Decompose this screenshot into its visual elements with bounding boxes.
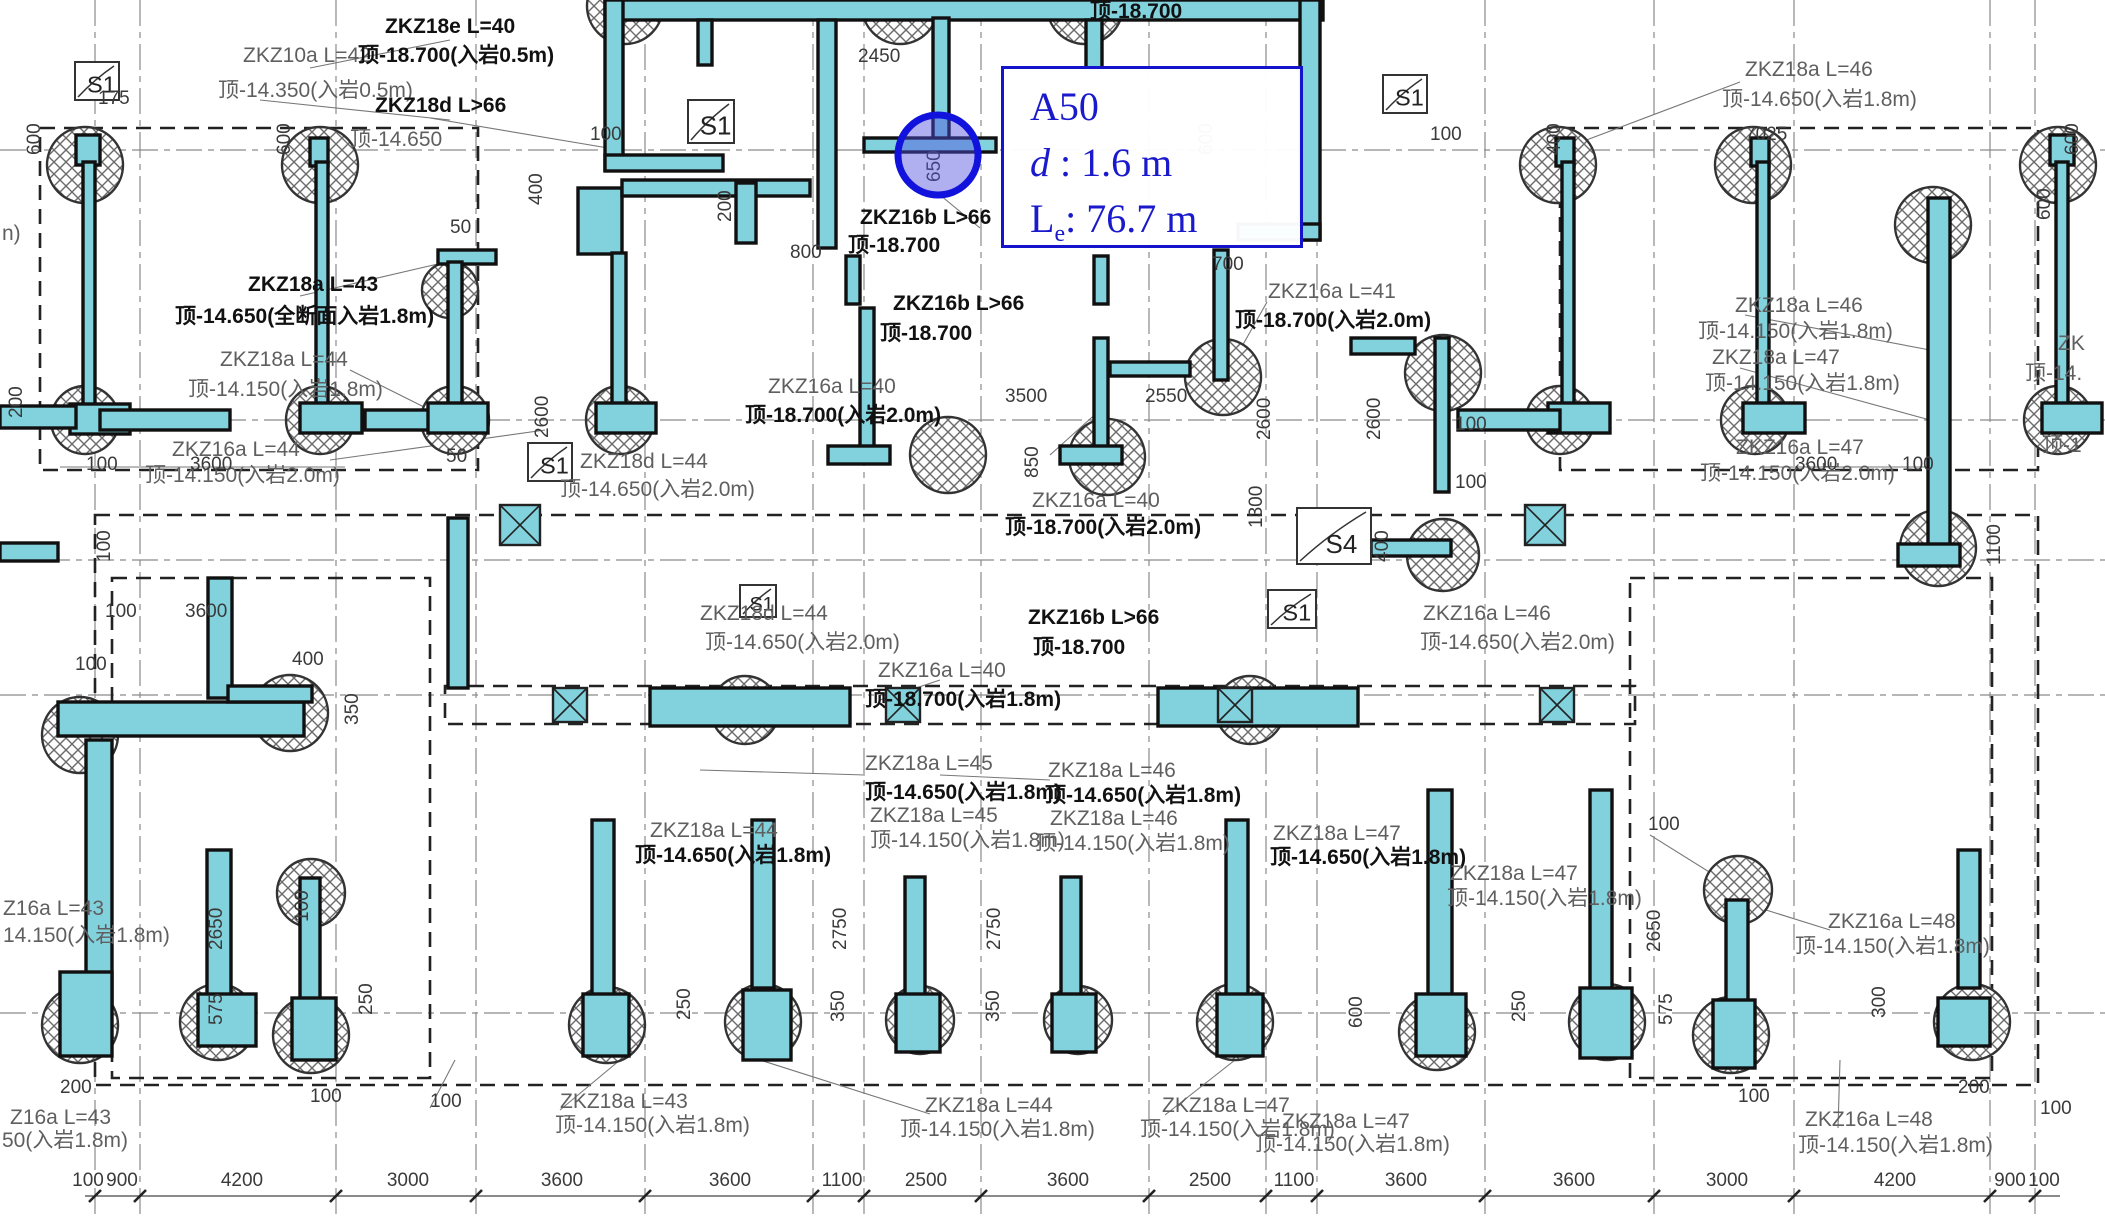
dimension-label: 3600	[185, 601, 227, 622]
wall-segment	[612, 253, 626, 409]
wall-segment	[0, 543, 58, 561]
pile-label: ZKZ16b L>66	[893, 292, 1024, 315]
pile-info-callout: A50 d : 1.6 m Le: 76.7 m	[1001, 66, 1303, 248]
dimension-label: 600	[24, 123, 45, 155]
dimension-label: 575	[206, 993, 227, 1025]
pile-label: ZKZ18a L=46	[1050, 807, 1178, 830]
pile-label: 顶-14.150(入岩1.8m)	[555, 1114, 750, 1137]
pile-label: 顶-14.150(入岩1.8m)	[1798, 1134, 1993, 1157]
dimension-label: 100	[75, 654, 107, 675]
pile-label: 顶-18.700(入岩2.0m)	[1235, 308, 1431, 332]
dimension-label: 100	[94, 530, 115, 562]
section-symbol-label: S4	[1325, 529, 1357, 559]
dimension-label: 2650	[1644, 910, 1665, 952]
pile-label: 顶-14.150(入岩1.8m)	[900, 1118, 1095, 1141]
wall-segment	[1580, 988, 1632, 1058]
pile-label: ZKZ16a L=40	[768, 375, 896, 398]
pile-label: ZKZ18a L=47	[1273, 822, 1401, 845]
diameter-label: d	[1030, 140, 1050, 185]
dimension-label: 100	[1648, 814, 1680, 835]
dimension-label: 575	[1656, 993, 1677, 1025]
dimension-label: 350	[983, 990, 1004, 1022]
wall-segment	[736, 183, 756, 243]
pile-label: 顶-18.700	[848, 234, 940, 257]
pile-label: 顶-14.150(入岩2.0m)	[145, 464, 340, 487]
wall-segment	[1958, 850, 1980, 988]
wall-segment	[228, 686, 312, 702]
pile-label: ZKZ18a L=47	[1450, 862, 1578, 885]
wall-segment	[650, 688, 850, 726]
length-label-subscript: e	[1054, 221, 1065, 247]
dimension-label: 250	[674, 988, 695, 1020]
dimension-label: 7025	[1745, 124, 1787, 145]
pile-circle	[910, 417, 986, 493]
foundation-plan-screenshot: S1S1S1S1S1S1S4 ZKZ10a L=42顶-14.350(入岩0.5…	[0, 0, 2105, 1216]
wall-segment	[828, 446, 890, 464]
dimension-label: 250	[356, 983, 377, 1015]
pile-label: 顶-14.650	[350, 128, 442, 151]
wall-segment	[1300, 0, 1320, 240]
wall-segment	[1562, 162, 1574, 412]
pile-label: 顶-18.700	[880, 322, 972, 345]
wall-segment	[1110, 362, 1190, 376]
dimension-label: 2600	[1254, 398, 1275, 440]
pile-label: ZKZ18a L=45	[865, 752, 993, 775]
dimension-label: 100	[105, 601, 137, 622]
wall-segment	[1060, 446, 1122, 464]
dimension-label: 50	[446, 446, 467, 467]
dimension-label: 2550	[1145, 386, 1187, 407]
dimension-label: 2500	[1189, 1170, 1231, 1191]
dimension-label: 300	[1869, 986, 1890, 1018]
pile-label: ZKZ16b L>66	[1028, 606, 1159, 629]
dimension-label: 100	[590, 124, 622, 145]
dimension-label: 900	[106, 1170, 138, 1191]
pile-label: ZKZ16a L=48	[1828, 910, 1956, 933]
dimension-label: 200	[60, 1077, 92, 1098]
wall-segment	[605, 155, 723, 171]
dimension-label: 3000	[1706, 1170, 1748, 1191]
dimension-label: 350	[342, 693, 363, 725]
pile-label: Z16a L=43	[3, 897, 104, 920]
pile-label: ZKZ18a L=46	[1735, 294, 1863, 317]
dimension-label: 3500	[1005, 386, 1047, 407]
dimension-label: 350	[828, 990, 849, 1022]
wall-segment	[896, 994, 940, 1052]
pile-label: 顶-14.150(入岩1.8m)	[1035, 832, 1230, 855]
pile-label: ZKZ18a L=46	[1745, 58, 1873, 81]
dimension-label: 100	[292, 890, 313, 922]
dimension-label: 3600	[1047, 1170, 1089, 1191]
dimension-label: 100	[1455, 414, 1487, 435]
dimension-label: 200	[6, 386, 27, 418]
dimension-label: 2500	[905, 1170, 947, 1191]
wall-segment	[448, 518, 468, 688]
wall-segment	[905, 877, 925, 997]
wall-segment	[596, 403, 656, 433]
callout-pile-id: A50	[1030, 79, 1274, 135]
wall-segment	[58, 702, 304, 736]
section-symbol-label: S1	[1282, 599, 1311, 625]
pile-label: Z16a L=43	[10, 1106, 111, 1129]
wall-segment	[1416, 994, 1466, 1056]
dimension-label: 50	[450, 217, 471, 238]
pile-label: 顶-14.150(入岩1.8m)	[1447, 887, 1642, 910]
pile-label: 顶-14.650(入岩1.8m)	[1722, 88, 1917, 111]
wall-segment	[1435, 338, 1449, 492]
dimension-label: 600	[274, 123, 295, 155]
dimension-label: 3000	[387, 1170, 429, 1191]
pile-label: ZKZ18a L=44	[220, 348, 348, 371]
wall-segment	[1052, 994, 1096, 1052]
dimension-label: 3600	[709, 1170, 751, 1191]
wall-segment	[2042, 403, 2102, 433]
pile-label: ZKZ16a L=46	[1423, 602, 1551, 625]
dimension-label: 100	[1738, 1086, 1770, 1107]
dimension-label: 400	[526, 173, 547, 205]
wall-segment	[1726, 900, 1748, 1006]
callout-length-row: Le: 76.7 m	[1030, 191, 1274, 262]
pile-label: ZKZ18a L=45	[870, 804, 998, 827]
wall-segment	[1086, 20, 1102, 68]
dimension-label: 3600	[1385, 1170, 1427, 1191]
wall-segment	[698, 20, 712, 65]
pile-label: ZKZ18d L=44	[700, 602, 828, 625]
length-separator: :	[1065, 196, 1086, 241]
wall-segment	[1928, 198, 1950, 556]
dimension-label: 400	[1544, 123, 1565, 155]
callout-diameter-row: d : 1.6 m	[1030, 135, 1274, 191]
diameter-separator: :	[1050, 140, 1081, 185]
dimension-label: 850	[1022, 446, 1043, 478]
pile-label: 顶-14.	[2025, 362, 2082, 385]
dimension-label: 900	[1994, 1170, 2026, 1191]
pile-label: 顶-18.700(入岩1.8m)	[865, 687, 1061, 711]
pile-label: 顶-18.700	[1033, 636, 1125, 659]
wall-segment	[592, 820, 614, 998]
pile-label: ZKZ16a L=48	[1805, 1108, 1933, 1131]
pile-label: ZKZ18a L=44	[925, 1094, 1053, 1117]
dimension-label: 600	[2062, 123, 2083, 155]
dimension-label: 3600	[541, 1170, 583, 1191]
wall-segment	[1094, 338, 1108, 452]
wall-segment	[1898, 544, 1960, 566]
pile-label: 14.150(入岩1.8m)	[3, 924, 170, 947]
dimension-label: 600	[2034, 188, 2055, 220]
dimension-label: 4200	[221, 1170, 263, 1191]
pile-label: 顶-18.700	[1090, 0, 1182, 23]
pile-label: n)	[2, 222, 21, 245]
wall-segment	[83, 162, 95, 414]
wall-segment	[428, 403, 488, 433]
wall-segment	[1938, 998, 1990, 1046]
pile-label: ZKZ10a L=42	[243, 44, 371, 67]
dimension-label: 2600	[1364, 398, 1385, 440]
pile-label: 顶-14.150(入岩1.8m)	[1705, 372, 1900, 395]
wall-segment	[448, 262, 462, 410]
section-symbol-label: S1	[1395, 84, 1424, 110]
dimension-label: 400	[1372, 530, 1393, 562]
dimension-label: 100	[1430, 124, 1462, 145]
dimension-label: 175	[98, 88, 130, 109]
dimension-label: 1100	[1274, 1170, 1315, 1191]
dimension-label: 800	[790, 242, 822, 263]
pile-label: ZKZ18a L=47	[1712, 346, 1840, 369]
wall-segment	[583, 994, 629, 1056]
pile-label: 顶-14.150(入岩1.8m)	[1795, 935, 1990, 958]
pile-label: 顶-18.700(入岩0.5m)	[358, 43, 554, 67]
wall-segment	[208, 578, 232, 698]
wall-segment	[1713, 1000, 1755, 1068]
pile-label: ZKZ18a L=47	[1162, 1094, 1290, 1117]
dimension-label: 100	[2040, 1098, 2072, 1119]
wall-segment	[578, 188, 622, 254]
dimension-label: 1100	[822, 1170, 863, 1191]
dimension-label: 2750	[984, 908, 1005, 950]
leader-line	[940, 775, 1050, 780]
pile-label: ZKZ18d L>66	[375, 94, 506, 117]
section-symbol-label: S1	[700, 110, 732, 140]
dimension-label: 2750	[830, 908, 851, 950]
pile-label: ZK	[2058, 332, 2085, 355]
length-label: L	[1030, 196, 1054, 241]
pile-label: ZKZ18a L=44	[650, 819, 778, 842]
wall-segment	[818, 20, 836, 248]
pile-label: ZKZ18a L=46	[1048, 759, 1176, 782]
pile-label: 顶-18.700(入岩2.0m)	[745, 403, 941, 427]
pile-label: 顶-14.650(入岩1.8m)	[635, 843, 831, 867]
pile-label: 顶-14.150(入岩1.8m)	[188, 378, 383, 401]
pile-label: ZKZ16b L>66	[860, 206, 991, 229]
dimension-label: 100	[1902, 454, 1934, 475]
dimension-label: 250	[1509, 990, 1530, 1022]
leader-line	[700, 770, 865, 775]
dimension-label: 1100	[1984, 524, 2005, 565]
wall-segment	[846, 256, 860, 304]
highlighted-pile-marker[interactable]	[898, 115, 978, 195]
dimension-label: 200	[1958, 1077, 1990, 1098]
dimension-label: 2450	[858, 46, 900, 67]
dimension-label: 100	[1455, 472, 1487, 493]
wall-segment	[100, 410, 230, 430]
pile-label: ZKZ18d L=44	[580, 450, 708, 473]
dimension-label: 1300	[1246, 486, 1267, 528]
pile-label: ZKZ18a L=47	[1282, 1110, 1410, 1133]
pile-label: ZKZ16a L=40	[878, 659, 1006, 682]
leader-line	[760, 1060, 930, 1114]
wall-segment	[1217, 994, 1263, 1056]
dimension-label: 400	[292, 649, 324, 670]
wall-segment	[300, 403, 362, 433]
dimension-label: 2650	[206, 908, 227, 950]
dimension-label: 100	[2028, 1170, 2060, 1191]
dimension-label: 100	[86, 454, 118, 475]
building-outline	[112, 578, 430, 1078]
pile-label: ZKZ16a L=40	[1032, 489, 1160, 512]
dimension-label: 3600	[1553, 1170, 1595, 1191]
pile-label: 50(入岩1.8m)	[2, 1129, 128, 1152]
dimension-label: 600	[1346, 996, 1367, 1028]
wall-segment	[743, 990, 791, 1060]
dimension-label: 200	[715, 190, 736, 222]
section-symbol-label: S1	[540, 452, 569, 478]
pile-label: 顶-14.650(入岩2.0m)	[1420, 631, 1615, 654]
pile-label: 顶-14.150(入岩1.8m)	[1255, 1133, 1450, 1156]
dimension-label: 4200	[1874, 1170, 1916, 1191]
wall-segment	[605, 0, 1323, 20]
wall-segment	[1158, 688, 1358, 726]
pile-label: ZKZ16a L=41	[1268, 280, 1396, 303]
pile-label: 顶-14.650(入岩2.0m)	[560, 478, 755, 501]
pile-label: 顶-14.650(入岩1.8m)	[865, 780, 1061, 804]
wall-segment	[292, 998, 336, 1060]
wall-segment	[1743, 403, 1805, 433]
pile-label: 顶-1	[2042, 434, 2082, 457]
pile-label: 顶-18.700(入岩2.0m)	[1005, 515, 1201, 539]
pile-label: ZKZ18e L=40	[385, 15, 515, 38]
dimension-label: 3600	[190, 454, 232, 475]
dimension-label: 100	[430, 1091, 462, 1112]
pile-label: 顶-14.650(全断面入岩1.8m)	[175, 304, 434, 328]
dimension-label: 3600	[1795, 454, 1837, 475]
wall-segment	[1351, 338, 1415, 354]
pile-label: 顶-14.650(入岩1.8m)	[1270, 845, 1466, 869]
diameter-value: 1.6 m	[1081, 140, 1172, 185]
dimension-label: 100	[72, 1170, 104, 1191]
pile-label: ZKZ18a L=43	[560, 1090, 688, 1113]
pile-label: 顶-14.650(入岩1.8m)	[1045, 783, 1241, 807]
wall-segment	[86, 740, 112, 1008]
length-value: 76.7 m	[1086, 196, 1197, 241]
wall-segment	[60, 972, 112, 1056]
pile-label: 顶-14.150(入岩1.8m)	[1698, 320, 1893, 343]
pile-label: 顶-14.650(入岩2.0m)	[705, 631, 900, 654]
dimension-label: 100	[310, 1086, 342, 1107]
dimension-label: 2600	[532, 396, 553, 438]
wall-segment	[1094, 256, 1108, 304]
wall-segment	[1061, 877, 1081, 997]
bottom-dimension-line: 1009004200300036003600110025003600250011…	[72, 1170, 2060, 1202]
pile-label: ZKZ18a L=43	[248, 273, 378, 296]
